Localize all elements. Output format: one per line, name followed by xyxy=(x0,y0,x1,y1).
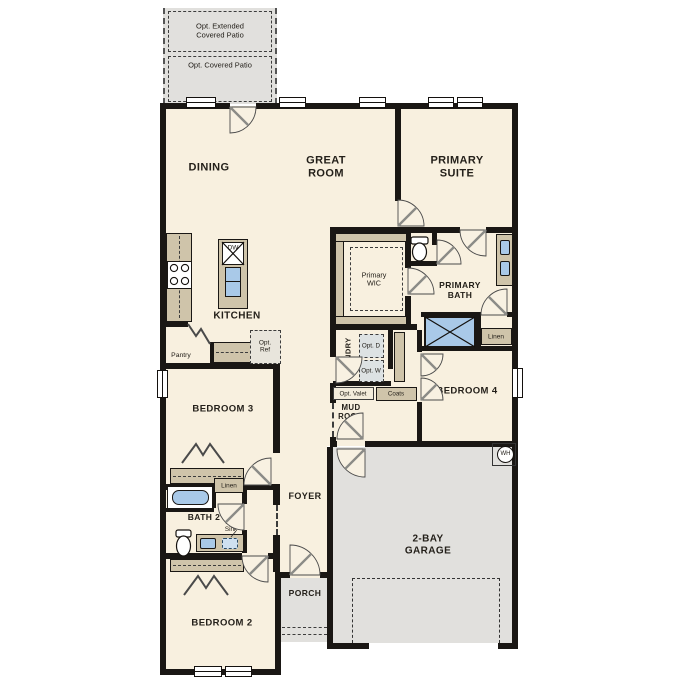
opt-sink-leader xyxy=(231,531,236,537)
toilet-bath2-bowl xyxy=(177,536,191,556)
bed3-closet-doors xyxy=(182,444,224,463)
pantry-door-zigzag xyxy=(188,324,210,344)
closet-doors xyxy=(182,324,228,595)
floor-plan: Opt. Extended Covered Patio Opt. Covered… xyxy=(0,0,687,687)
plan-symbols xyxy=(0,0,687,687)
toilet-primary-bowl xyxy=(413,243,427,261)
bed2-closet-doors xyxy=(184,576,228,595)
cooktop-burners xyxy=(170,264,188,284)
door-swings xyxy=(218,107,507,582)
toilet-icons xyxy=(176,237,428,556)
